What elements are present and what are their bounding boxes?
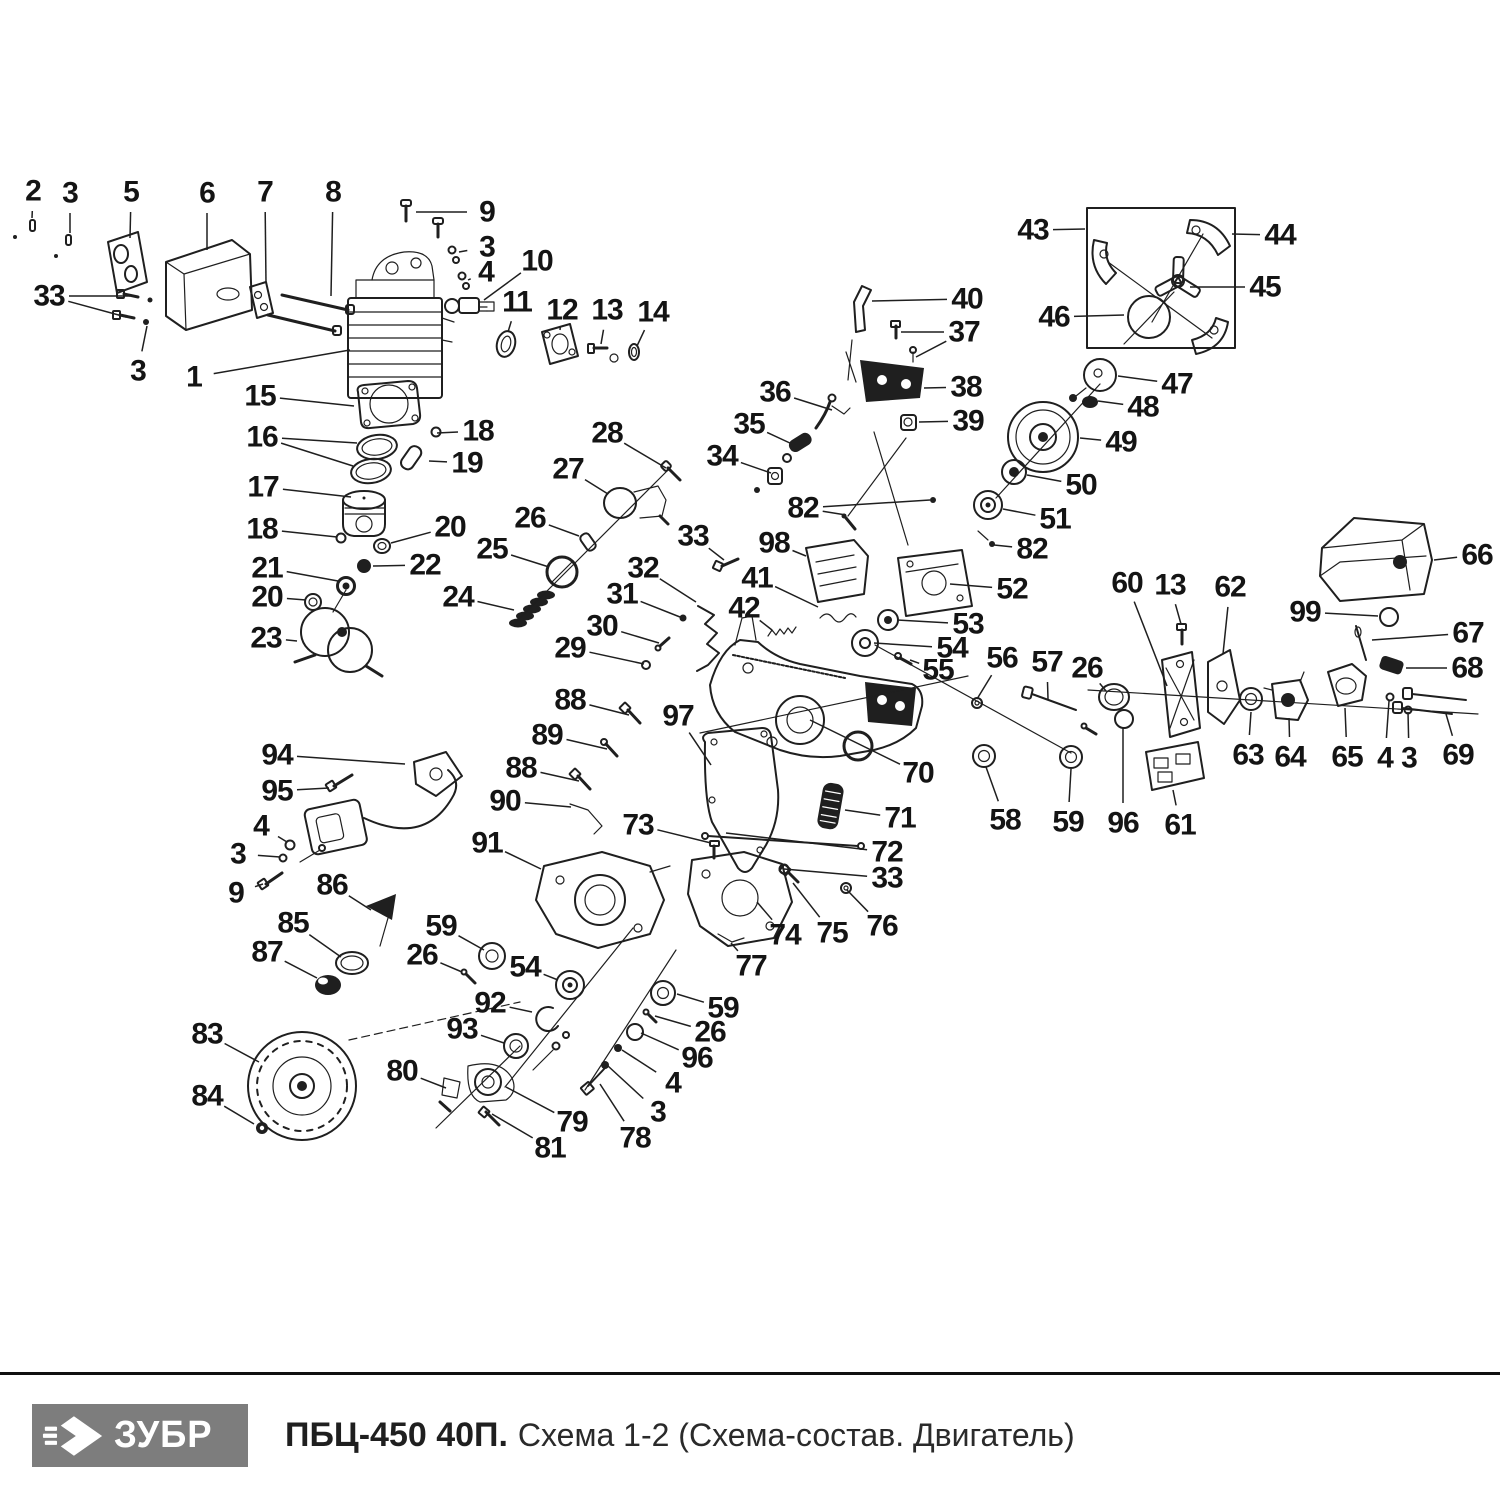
- leader-line: [624, 443, 666, 468]
- part-callout-6: 6: [199, 177, 215, 210]
- part-callout-7: 7: [257, 176, 273, 209]
- part-callout-44: 44: [1264, 219, 1297, 252]
- piston: [343, 491, 385, 536]
- leader-line: [309, 935, 341, 957]
- part-callout-26: 26: [1071, 652, 1103, 685]
- leader-line: [429, 461, 447, 462]
- leader-line: [468, 279, 471, 280]
- leader-line: [637, 330, 645, 346]
- part-callout-89: 89: [531, 719, 563, 752]
- leader-line: [760, 620, 772, 630]
- leader-line: [793, 883, 820, 917]
- throttle-linkage: [846, 286, 936, 545]
- leader-line: [1069, 769, 1071, 802]
- leader-line: [437, 432, 458, 433]
- leader-line: [286, 640, 297, 641]
- carb-mount-plate: [1162, 624, 1240, 737]
- part-callout-80: 80: [386, 1055, 418, 1088]
- part-callout-82: 82: [1016, 533, 1048, 566]
- leader-line: [1074, 315, 1124, 316]
- coil-fasteners: [257, 841, 325, 890]
- leader-line: [794, 398, 832, 410]
- part-callout-60: 60: [1111, 567, 1143, 600]
- part-callout-23: 23: [250, 622, 282, 655]
- part-callout-56: 56: [986, 642, 1018, 675]
- part-callout-13: 13: [591, 294, 623, 327]
- part-callout-66: 66: [1461, 539, 1493, 572]
- leader-line: [823, 500, 930, 507]
- part-callout-3: 3: [62, 177, 78, 210]
- leader-line: [590, 652, 645, 664]
- part-callout-82: 82: [787, 492, 819, 525]
- part-callout-33: 33: [677, 520, 709, 553]
- exploded-parts-diagram: 2356789341011121314333115161819171820212…: [0, 0, 1500, 1500]
- leader-line: [459, 936, 485, 950]
- handle-grip: [816, 782, 845, 831]
- part-callout-87: 87: [251, 936, 283, 969]
- leader-line: [283, 489, 351, 497]
- brand-logo: ЗУБР: [32, 1404, 248, 1467]
- leader-line: [793, 551, 807, 557]
- part-callout-65: 65: [1331, 741, 1363, 774]
- part-callout-5: 5: [123, 176, 139, 209]
- part-callout-48: 48: [1127, 391, 1159, 424]
- part-callout-40: 40: [951, 283, 983, 316]
- seal-parts-left: [315, 952, 368, 995]
- part-callout-4: 4: [1377, 742, 1394, 775]
- part-callout-13: 13: [1154, 569, 1186, 602]
- leader-line: [510, 1007, 532, 1012]
- part-callout-34: 34: [706, 440, 739, 473]
- part-callout-99: 99: [1289, 596, 1321, 629]
- part-callout-33: 33: [33, 280, 65, 313]
- leader-line: [525, 803, 571, 807]
- plug-gasket: [494, 329, 518, 359]
- part-callout-2: 2: [25, 175, 41, 208]
- muffler: [166, 240, 252, 330]
- oiler-parts-right: [1088, 608, 1478, 720]
- part-callout-63: 63: [1232, 739, 1264, 772]
- isolator-plate: [1146, 742, 1204, 790]
- part-callout-45: 45: [1249, 271, 1281, 304]
- zubr-logo-icon: [42, 1414, 104, 1458]
- part-callout-47: 47: [1161, 368, 1193, 401]
- part-callout-11: 11: [502, 286, 532, 319]
- part-callout-42: 42: [728, 592, 760, 625]
- leader-line: [214, 350, 350, 374]
- part-callout-22: 22: [409, 549, 441, 582]
- part-callout-96: 96: [1107, 807, 1139, 840]
- leader-line: [278, 837, 287, 843]
- leader-line: [505, 852, 541, 869]
- leader-line: [1446, 714, 1452, 736]
- muffler-gasket: [108, 232, 147, 293]
- leader-line: [1053, 229, 1085, 230]
- part-callout-49: 49: [1105, 426, 1137, 459]
- part-callout-62: 62: [1214, 571, 1246, 604]
- part-callout-35: 35: [733, 408, 765, 441]
- part-callout-14: 14: [637, 296, 670, 329]
- part-callout-50: 50: [1065, 469, 1097, 502]
- spark-plug: [445, 298, 494, 313]
- leader-line: [726, 833, 867, 850]
- part-callout-78: 78: [619, 1122, 651, 1155]
- leader-line: [1027, 475, 1061, 481]
- part-callout-58: 58: [989, 804, 1021, 837]
- leader-line: [1118, 376, 1157, 381]
- part-callout-24: 24: [442, 581, 475, 614]
- part-callout-38: 38: [950, 371, 982, 404]
- part-callout-61: 61: [1164, 809, 1196, 842]
- part-callout-9: 9: [228, 877, 244, 910]
- part-callout-97: 97: [662, 700, 694, 733]
- part-callout-64: 64: [1274, 741, 1307, 774]
- leader-line: [225, 1044, 259, 1063]
- leader-line: [1289, 718, 1290, 737]
- leader-line: [130, 212, 131, 238]
- part-callout-18: 18: [246, 513, 278, 546]
- leader-line: [258, 855, 280, 857]
- leader-line: [508, 321, 511, 332]
- part-callout-91: 91: [471, 827, 503, 860]
- leader-line: [601, 330, 604, 344]
- part-callout-67: 67: [1452, 617, 1484, 650]
- leader-line: [608, 1066, 643, 1099]
- leader-line: [845, 810, 880, 815]
- leader-line: [757, 902, 772, 920]
- leader-line: [622, 1050, 656, 1072]
- leader-line: [1408, 712, 1409, 738]
- leader-line: [585, 480, 608, 494]
- part-callout-3: 3: [230, 838, 246, 871]
- leader-line: [511, 555, 549, 567]
- part-callout-98: 98: [758, 527, 790, 560]
- cylinder: [348, 252, 454, 398]
- leader-line: [1345, 708, 1346, 737]
- part-callout-88: 88: [554, 684, 586, 717]
- part-callout-75: 75: [816, 917, 848, 950]
- chain-brake-parts: [768, 438, 995, 636]
- part-callout-4: 4: [253, 810, 270, 843]
- leader-line: [784, 869, 867, 876]
- schematic-page: 2356789341011121314333115161819171820212…: [0, 0, 1500, 1500]
- leader-line: [506, 1087, 554, 1113]
- leader-line: [709, 548, 724, 560]
- leader-line: [641, 1033, 679, 1050]
- leader-line: [919, 421, 948, 422]
- part-callout-93: 93: [446, 1013, 478, 1046]
- leader-line: [872, 299, 947, 301]
- leader-line: [977, 675, 992, 699]
- clutch-assembly-box: [1087, 208, 1235, 354]
- leader-line: [285, 961, 317, 978]
- part-callout-33: 33: [871, 862, 903, 895]
- leader-line: [1434, 557, 1457, 560]
- leader-line: [689, 733, 711, 765]
- part-callout-92: 92: [474, 987, 506, 1020]
- brand-name: ЗУБР: [114, 1414, 213, 1457]
- part-callout-86: 86: [316, 869, 348, 902]
- muffler-bolts: [268, 295, 354, 335]
- leader-line: [847, 890, 868, 912]
- leader-line: [775, 587, 818, 607]
- leader-line: [287, 599, 306, 601]
- leader-line: [373, 565, 405, 566]
- leader-line: [874, 643, 932, 647]
- part-callout-59: 59: [707, 992, 739, 1025]
- part-callout-12: 12: [546, 294, 578, 327]
- flange-screw: [588, 344, 618, 362]
- part-callout-27: 27: [552, 453, 584, 486]
- part-callout-70: 70: [902, 757, 934, 790]
- leader-line: [1048, 682, 1049, 699]
- part-callout-1: 1: [186, 361, 202, 394]
- mount-bolt-chain: [533, 950, 676, 1095]
- leader-line: [287, 572, 338, 581]
- piston-pin: [399, 444, 424, 472]
- engine-mounts: [973, 745, 1082, 768]
- leader-line: [655, 1016, 691, 1026]
- leader-line: [1249, 712, 1251, 735]
- caption-subtitle: Схема 1-2 (Схема-состав. Двигатель): [518, 1417, 1075, 1454]
- flange-washer: [629, 344, 639, 360]
- part-callout-10: 10: [521, 245, 553, 278]
- part-callout-74: 74: [769, 919, 802, 952]
- part-callout-95: 95: [261, 775, 293, 808]
- leader-line: [767, 432, 792, 444]
- leader-line: [297, 788, 329, 790]
- part-callout-94: 94: [261, 739, 294, 772]
- part-callout-19: 19: [451, 447, 483, 480]
- crankshaft: [295, 590, 382, 676]
- part-callout-8: 8: [325, 176, 341, 209]
- part-callout-28: 28: [591, 417, 623, 450]
- model-name: ПБЦ-450 40П.: [285, 1416, 508, 1455]
- leader-line: [282, 531, 337, 537]
- ignition-coil: [304, 752, 462, 855]
- part-callout-57: 57: [1031, 646, 1063, 679]
- part-callout-3: 3: [130, 355, 146, 388]
- flywheel-nut: [256, 1122, 268, 1134]
- leader-line: [677, 994, 704, 1002]
- leader-line: [1223, 607, 1228, 654]
- part-callout-37: 37: [948, 316, 980, 349]
- crankcase-half: [536, 852, 670, 948]
- part-callout-52: 52: [996, 573, 1028, 606]
- leader-line: [1173, 790, 1176, 805]
- part-callout-18: 18: [462, 415, 494, 448]
- part-callout-25: 25: [476, 533, 508, 566]
- flywheel: [248, 1002, 520, 1140]
- leader-line: [459, 251, 467, 253]
- part-callout-68: 68: [1451, 652, 1483, 685]
- leader-line: [1080, 438, 1101, 440]
- leader-line: [600, 1084, 624, 1121]
- leader-line: [142, 326, 147, 351]
- part-callout-43: 43: [1017, 214, 1049, 247]
- leader-line: [280, 398, 354, 406]
- leader-line: [68, 301, 126, 317]
- leader-line: [589, 705, 629, 715]
- part-callout-54: 54: [509, 951, 542, 984]
- leader-line: [281, 443, 353, 466]
- leader-line: [994, 545, 1012, 547]
- part-callout-41: 41: [741, 562, 773, 595]
- part-callout-81: 81: [534, 1132, 566, 1165]
- part-callout-59: 59: [1052, 806, 1084, 839]
- part-callout-76: 76: [866, 910, 898, 943]
- pin-clips: [337, 428, 441, 543]
- part-callout-29: 29: [554, 632, 586, 665]
- rod-small-parts: [305, 539, 390, 610]
- part-callout-51: 51: [1039, 503, 1071, 536]
- part-callout-17: 17: [247, 471, 279, 504]
- leader-line: [478, 602, 515, 611]
- part-callout-20: 20: [251, 581, 283, 614]
- part-callout-4: 4: [478, 256, 495, 289]
- part-callout-39: 39: [952, 405, 984, 438]
- part-callout-46: 46: [1038, 301, 1070, 334]
- leader-line: [641, 601, 680, 617]
- cylinder-screws: [401, 200, 469, 289]
- throttle-trigger: [366, 894, 396, 946]
- piston-rings: [350, 432, 399, 485]
- part-callout-71: 71: [884, 802, 916, 835]
- part-callout-20: 20: [434, 511, 466, 544]
- leader-line: [1003, 509, 1035, 515]
- crankcase-upper: [700, 616, 968, 760]
- leader-line: [421, 1078, 446, 1088]
- part-callout-3: 3: [650, 1096, 666, 1129]
- leader-line: [1134, 602, 1167, 686]
- part-callout-30: 30: [586, 610, 618, 643]
- part-callout-15: 15: [244, 380, 276, 413]
- leader-line: [297, 756, 405, 764]
- small-fasteners-topleft: [13, 220, 71, 258]
- leader-line: [1372, 635, 1448, 641]
- leader-line: [823, 511, 846, 515]
- leader-line: [331, 212, 333, 296]
- fuel-line-parts: [754, 395, 850, 494]
- part-callout-3: 3: [1401, 742, 1417, 775]
- part-callout-84: 84: [191, 1080, 224, 1113]
- leader-line: [950, 584, 992, 587]
- leader-line: [660, 579, 696, 602]
- leader-line: [481, 1035, 504, 1043]
- part-callout-83: 83: [191, 1018, 223, 1051]
- air-filter-housing: [1320, 518, 1432, 601]
- part-callout-4: 4: [665, 1067, 682, 1100]
- diagram-caption: ПБЦ-450 40П. Схема 1-2 (Схема-состав. Дв…: [285, 1404, 1075, 1467]
- part-callout-90: 90: [489, 785, 521, 818]
- part-callout-36: 36: [759, 376, 791, 409]
- part-callout-32: 32: [627, 552, 659, 585]
- leader-line: [440, 963, 462, 972]
- part-callout-88: 88: [505, 752, 537, 785]
- leader-line: [916, 341, 946, 357]
- leader-line: [391, 532, 431, 543]
- callout-layer: 2356789341011121314333115161819171820212…: [25, 175, 1493, 1165]
- part-callout-73: 73: [622, 809, 654, 842]
- part-callout-9: 9: [479, 196, 495, 229]
- leader-line: [349, 896, 371, 910]
- part-callout-26: 26: [406, 939, 438, 972]
- leader-line: [1386, 701, 1389, 738]
- leader-line: [1325, 613, 1378, 616]
- leader-line: [282, 438, 357, 443]
- part-callout-26: 26: [514, 502, 546, 535]
- leader-line: [924, 388, 946, 389]
- leader-line: [1098, 401, 1123, 404]
- leader-line: [549, 525, 579, 536]
- leader-line: [544, 974, 558, 980]
- leader-line: [986, 767, 998, 801]
- leader-line: [897, 620, 948, 623]
- leader-line: [1175, 604, 1181, 624]
- footer-divider: [0, 1372, 1500, 1375]
- part-callout-69: 69: [1442, 739, 1474, 772]
- leader-line: [224, 1106, 254, 1124]
- leader-line: [265, 212, 266, 283]
- part-callout-77: 77: [735, 950, 767, 983]
- part-callout-16: 16: [246, 421, 278, 454]
- leader-line: [741, 463, 771, 473]
- leader-line: [621, 632, 659, 643]
- part-callout-55: 55: [922, 654, 954, 687]
- leader-line: [1232, 234, 1260, 235]
- cylinder-gasket: [358, 381, 421, 428]
- exhaust-gasket: [250, 282, 273, 318]
